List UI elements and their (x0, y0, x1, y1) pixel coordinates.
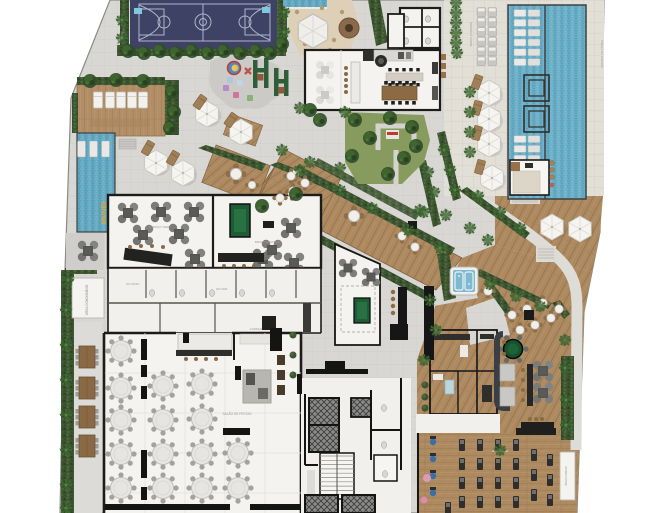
svg-text:ESPAÇO TEEN: ESPAÇO TEEN (149, 225, 170, 229)
svg-text:PRAÇA DA PISCINA: PRAÇA DA PISCINA (600, 40, 604, 68)
svg-text:COZINHA: COZINHA (250, 327, 263, 331)
svg-text:WC MASC: WC MASC (126, 282, 140, 286)
svg-text:ÁREA COMUM: ÁREA COMUM (564, 466, 568, 486)
svg-text:BRINQUEDOTECA: BRINQUEDOTECA (255, 240, 281, 244)
svg-text:SALÃO DE FESTAS: SALÃO DE FESTAS (223, 411, 252, 416)
svg-text:ACESSO À TORRE: ACESSO À TORRE (469, 22, 473, 47)
svg-text:WC FEM: WC FEM (216, 287, 228, 291)
svg-text:ÁREA CONDOMÍNIO: ÁREA CONDOMÍNIO (85, 284, 89, 315)
